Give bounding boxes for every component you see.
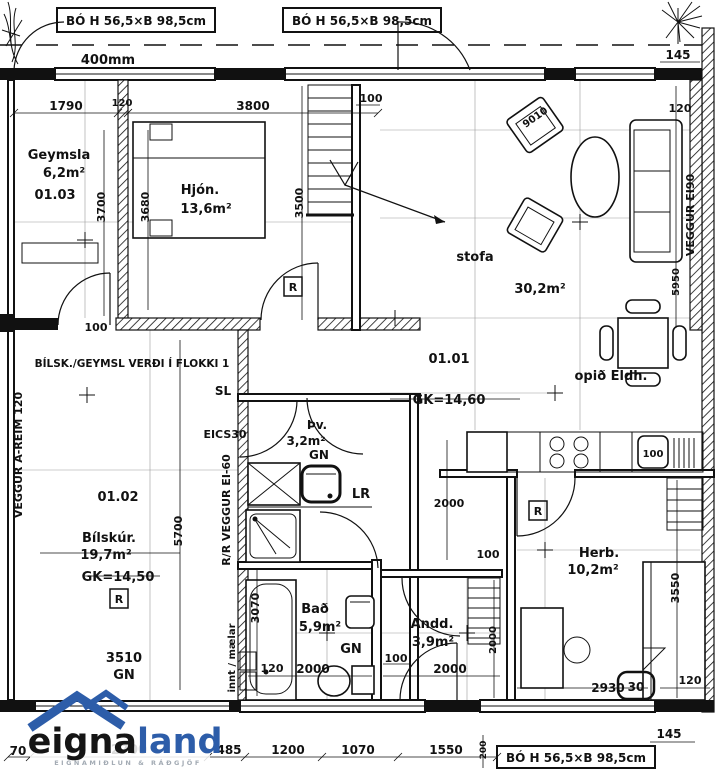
wall-label-rr-veggur: R/R VEGGUR EI-60 bbox=[220, 454, 233, 566]
plant-top-left-icon bbox=[2, 2, 22, 64]
room-bilskur-level: GK=14,50 bbox=[82, 570, 155, 585]
dim-3680: 3680 bbox=[139, 191, 152, 222]
dim-3070: 3070 bbox=[249, 592, 262, 623]
plant-top-right-icon bbox=[662, 2, 702, 44]
label-eics30: EICS30 bbox=[203, 428, 246, 441]
shower bbox=[246, 510, 300, 562]
room-hjon-name: Hjón. bbox=[181, 183, 219, 198]
dim-5950: 5950 bbox=[671, 268, 682, 296]
room-stofa-name: stofa bbox=[456, 250, 493, 265]
dim-3700: 3700 bbox=[95, 191, 108, 222]
kitchen-counter bbox=[467, 432, 703, 472]
dim-2000-andd: 2000 bbox=[433, 662, 466, 676]
room-geymsla-id: 01.03 bbox=[34, 188, 75, 203]
label-gn-bad: GN bbox=[340, 642, 362, 657]
note-wall-thickness: 400mm bbox=[81, 53, 135, 68]
room-herb-area: 10,2m² bbox=[567, 563, 618, 578]
dryer-lr bbox=[302, 466, 340, 502]
room-bilskur-area: 19,7m² bbox=[80, 548, 131, 563]
logo-text-eigna: eigna bbox=[28, 722, 137, 762]
wall-label-veggur-ei90: VEGGUR EI90 bbox=[684, 174, 697, 257]
window-top-1 bbox=[55, 68, 215, 80]
bath-sink bbox=[346, 596, 374, 628]
room-andd-area: 3,9m² bbox=[412, 635, 454, 650]
dim-2000-bath: 2000 bbox=[296, 662, 329, 676]
floor-plan-canvas: BÓ H 56,5×B 98,5cm BÓ H 56,5×B 98,5cm BÓ… bbox=[0, 0, 721, 770]
window-label-bottom: BÓ H 56,5×B 98,5cm bbox=[506, 750, 646, 765]
window-top-2 bbox=[285, 68, 545, 80]
room-bad-name: Bað bbox=[301, 602, 329, 617]
radiator-label-hjon: R bbox=[289, 281, 298, 294]
dim-100-herb-wall: 100 bbox=[477, 548, 500, 561]
room-stofa-id: 01.01 bbox=[428, 352, 469, 367]
stairs-main bbox=[306, 85, 445, 224]
dim-3800: 3800 bbox=[236, 99, 269, 113]
radiator-label-bilskur: R bbox=[115, 593, 124, 606]
dim-120-herb: 120 bbox=[679, 674, 702, 687]
wall-label-a-reim: VEGGUR A-REIM 120 bbox=[12, 392, 25, 519]
dim-145-top: 145 bbox=[665, 48, 690, 62]
label-gn-garage: GN bbox=[113, 668, 135, 683]
dim-100-stairs: 100 bbox=[360, 92, 383, 105]
room-herb-name: Herb. bbox=[579, 546, 619, 561]
label-innt-maelar: innt / mælar bbox=[227, 623, 238, 692]
washer bbox=[248, 463, 300, 505]
dim-120-bath: 120 bbox=[261, 662, 284, 675]
dim-100-bath: 100 bbox=[385, 652, 408, 665]
dim-120-sofa: 120 bbox=[669, 102, 692, 115]
room-bad-area: 5,9m² bbox=[299, 620, 341, 635]
coffee-table bbox=[571, 137, 619, 217]
dim-100-sink: 100 bbox=[643, 449, 664, 460]
room-bilskur-name: Bílskúr. bbox=[82, 531, 136, 546]
room-hjon-area: 13,6m² bbox=[180, 202, 231, 217]
dim-1790: 1790 bbox=[49, 99, 82, 113]
label-sl: SL bbox=[215, 384, 232, 398]
dim-3510: 3510 bbox=[106, 651, 142, 666]
dim-120-wall: 120 bbox=[112, 98, 133, 109]
bath-hall-door bbox=[320, 512, 378, 568]
dim-30: 30 bbox=[628, 680, 645, 694]
window-top-3 bbox=[575, 68, 655, 80]
geymsla-door bbox=[58, 273, 110, 325]
room-stofa-area: 30,2m² bbox=[514, 282, 565, 297]
balcony-door bbox=[398, 22, 470, 70]
logo-tagline: EIGNAMIÐLUN & RÁÐGJÖF bbox=[54, 758, 202, 767]
room-geymsla-area: 6,2m² bbox=[43, 166, 85, 181]
herb-door bbox=[517, 478, 575, 536]
floor-plan-drawing: BÓ H 56,5×B 98,5cm BÓ H 56,5×B 98,5cm BÓ… bbox=[0, 0, 721, 770]
dim-145-bottom: 145 bbox=[656, 727, 681, 741]
logo-text-land: land bbox=[137, 722, 223, 762]
dim-1200: 1200 bbox=[271, 743, 304, 757]
dim-2000-kitchen: 2000 bbox=[434, 497, 465, 510]
label-gn-thvottur: GN bbox=[309, 448, 329, 462]
room-geymsla-name: Geymsla bbox=[28, 148, 90, 163]
dim-200: 200 bbox=[479, 741, 489, 760]
room-eldhus-name: opið Eldh. bbox=[575, 369, 648, 384]
dim-2000-vert: 2000 bbox=[488, 626, 499, 654]
stove bbox=[550, 437, 588, 468]
armchair-2 bbox=[506, 197, 564, 254]
dim-100-garage: 100 bbox=[85, 321, 108, 334]
dim-5700: 5700 bbox=[172, 515, 185, 546]
bed-hjon bbox=[133, 122, 265, 238]
sofa bbox=[630, 120, 682, 262]
dim-3500: 3500 bbox=[293, 187, 306, 218]
window-bottom-1 bbox=[240, 700, 425, 712]
room-andd-name: Andd. bbox=[411, 617, 454, 632]
window-bottom-2 bbox=[480, 700, 655, 712]
room-thvottur-name: Þv. bbox=[307, 418, 327, 432]
dim-70: 70 bbox=[10, 744, 27, 758]
room-thvottur-area: 3,2m² bbox=[286, 434, 325, 448]
desk-herb bbox=[521, 608, 590, 688]
dim-1070: 1070 bbox=[341, 743, 374, 757]
wardrobe-herb bbox=[667, 478, 703, 530]
dim-3550: 3550 bbox=[669, 572, 682, 603]
shelf-geymsla bbox=[22, 243, 98, 263]
label-lr: LR bbox=[352, 487, 370, 502]
window-label-top-1: BÓ H 56,5×B 98,5cm bbox=[66, 13, 206, 28]
room-bilskur-id: 01.02 bbox=[97, 490, 138, 505]
radiator-label-herb: R bbox=[534, 505, 543, 518]
dim-1550: 1550 bbox=[429, 743, 462, 757]
room-stofa-level: GK=14,60 bbox=[413, 393, 486, 408]
window-label-top-2: BÓ H 56,5×B 98,5cm bbox=[292, 13, 432, 28]
note-garage: BÍLSK./GEYMSL VERÐI Í FLOKKI 1 bbox=[35, 357, 230, 370]
